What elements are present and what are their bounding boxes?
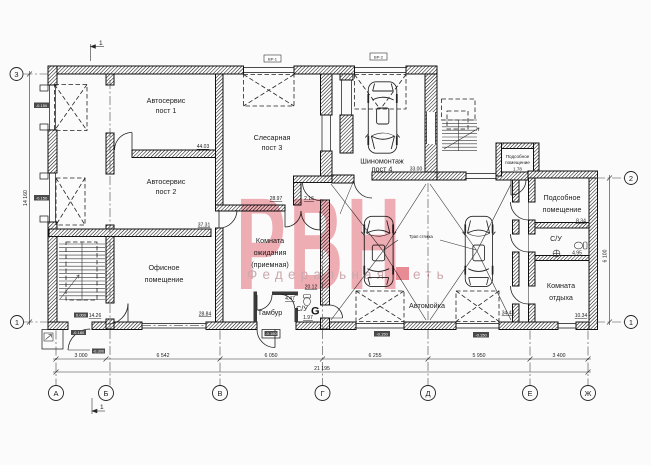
svg-text:пост 1: пост 1: [156, 106, 177, 115]
svg-text:-0.180: -0.180: [265, 331, 277, 336]
svg-text:-0.150: -0.150: [36, 195, 48, 200]
svg-text:10.34: 10.34: [575, 313, 588, 319]
svg-text:5 950: 5 950: [473, 353, 486, 359]
svg-text:еть: еть: [413, 267, 449, 282]
svg-text:2: 2: [629, 174, 633, 183]
svg-text:0.000: 0.000: [76, 313, 87, 318]
svg-text:3: 3: [14, 70, 18, 79]
svg-text:-0.180: -0.180: [73, 330, 85, 335]
svg-text:Слесарная: Слесарная: [254, 133, 291, 142]
svg-text:отдыха: отдыха: [549, 293, 573, 302]
svg-text:3 000: 3 000: [75, 353, 88, 359]
svg-text:3 400: 3 400: [553, 353, 566, 359]
svg-text:-0.300: -0.300: [93, 349, 105, 354]
svg-text:пост 2: пост 2: [156, 187, 177, 196]
svg-text:8.34: 8.34: [576, 219, 586, 225]
svg-text:44.03: 44.03: [197, 144, 210, 150]
svg-text:34.43: 34.43: [502, 311, 515, 317]
svg-text:Автосервис: Автосервис: [147, 177, 186, 186]
svg-text:Комната: Комната: [547, 281, 575, 290]
svg-text:1: 1: [629, 318, 633, 327]
svg-text:21 195: 21 195: [314, 366, 330, 372]
svg-text:помещение: помещение: [543, 205, 582, 214]
svg-text:Б: Б: [104, 389, 109, 398]
svg-text:Е: Е: [527, 389, 532, 398]
svg-text:Ж: Ж: [585, 389, 592, 398]
svg-text:ВР-1: ВР-1: [268, 57, 278, 62]
svg-text:6 100: 6 100: [603, 249, 609, 262]
svg-text:Подсобное: Подсобное: [544, 193, 581, 202]
svg-text:-0.150: -0.150: [475, 332, 487, 337]
svg-text:ВР-2: ВР-2: [374, 55, 384, 60]
svg-text:РВН: РВН: [236, 170, 404, 317]
svg-text:В: В: [217, 389, 222, 398]
svg-text:Подсобное: Подсобное: [506, 154, 530, 159]
svg-text:помещение: помещение: [145, 275, 184, 284]
svg-text:Автомойка: Автомойка: [409, 301, 445, 310]
svg-text:1: 1: [100, 404, 104, 411]
svg-text:-0.150: -0.150: [376, 331, 388, 336]
svg-text:Автосервис: Автосервис: [147, 96, 186, 105]
svg-text:33.00: 33.00: [410, 167, 423, 173]
svg-text:Г: Г: [320, 389, 324, 398]
svg-text:А: А: [53, 389, 58, 398]
svg-text:6 255: 6 255: [369, 353, 382, 359]
svg-text:28.84: 28.84: [199, 312, 212, 318]
svg-text:6 050: 6 050: [265, 353, 278, 359]
svg-text:1: 1: [99, 40, 103, 47]
svg-text:14.26: 14.26: [89, 313, 102, 319]
svg-text:4.95: 4.95: [572, 251, 582, 257]
svg-text:Д: Д: [425, 389, 430, 398]
svg-text:Федеральная: Федеральная: [247, 267, 389, 282]
svg-text:пост 3: пост 3: [262, 143, 283, 152]
svg-text:-0.150: -0.150: [36, 103, 48, 108]
svg-text:С/У: С/У: [550, 234, 562, 243]
svg-text:14 160: 14 160: [23, 190, 29, 206]
svg-text:37.31: 37.31: [198, 223, 211, 229]
svg-text:Офисное: Офисное: [148, 263, 179, 272]
svg-text:Трап стяжка: Трап стяжка: [409, 234, 433, 239]
svg-text:помещение: помещение: [505, 160, 530, 165]
svg-text:1.78: 1.78: [513, 167, 522, 172]
svg-text:6 542: 6 542: [157, 353, 170, 359]
svg-text:1: 1: [15, 318, 19, 327]
